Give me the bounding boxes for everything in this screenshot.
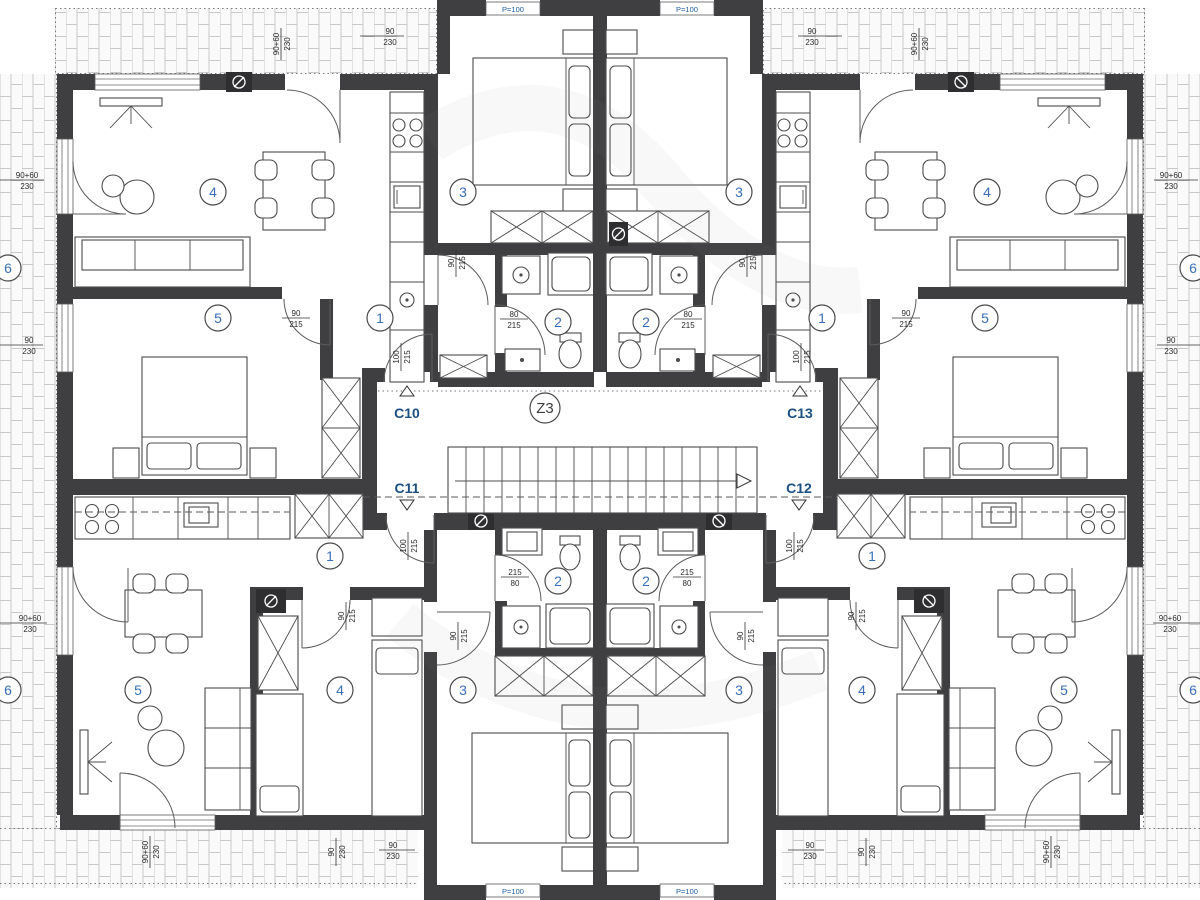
svg-text:4: 4 <box>858 682 866 698</box>
room-label: 2 <box>545 568 571 594</box>
svg-text:230: 230 <box>1053 845 1062 859</box>
window-parapet-label: P=100 <box>676 5 698 14</box>
wardrobe-icon <box>322 378 360 478</box>
room-label: 5 <box>972 305 998 331</box>
section-marker-c12: C12 <box>786 480 812 510</box>
room-label: 4 <box>327 677 353 703</box>
dim-door: 21580 <box>673 568 701 588</box>
svg-text:80: 80 <box>684 310 693 319</box>
svg-text:215: 215 <box>680 568 694 577</box>
svg-text:215: 215 <box>348 609 357 623</box>
svg-text:90: 90 <box>337 611 346 620</box>
svg-text:4: 4 <box>983 184 991 200</box>
room-label: 3 <box>726 179 752 205</box>
section-marker-c13: C13 <box>787 386 813 421</box>
svg-text:C10: C10 <box>394 405 420 421</box>
room-label: 6 <box>0 677 21 703</box>
svg-text:90: 90 <box>847 611 856 620</box>
svg-text:80: 80 <box>510 310 519 319</box>
svg-text:215: 215 <box>289 320 303 329</box>
svg-text:230: 230 <box>383 38 397 47</box>
room-label: 1 <box>367 305 393 331</box>
stair-label: Z3 <box>530 393 560 423</box>
svg-text:80: 80 <box>683 579 692 588</box>
svg-text:Z3: Z3 <box>536 400 554 417</box>
svg-text:215: 215 <box>747 629 756 643</box>
room-label: 5 <box>125 677 151 703</box>
room-label: 6 <box>0 255 21 281</box>
svg-text:C13: C13 <box>787 405 813 421</box>
svg-text:90+60: 90+60 <box>1042 840 1051 863</box>
svg-text:90: 90 <box>808 27 817 36</box>
svg-text:1: 1 <box>376 310 384 326</box>
svg-text:90: 90 <box>25 336 34 345</box>
stair-direction-arrow <box>737 474 751 488</box>
svg-text:C12: C12 <box>786 480 812 496</box>
kitchen-furniture <box>75 494 363 539</box>
svg-text:230: 230 <box>386 852 400 861</box>
svg-text:90: 90 <box>449 631 458 640</box>
svg-text:90: 90 <box>292 309 301 318</box>
svg-text:5: 5 <box>981 310 989 326</box>
svg-text:100: 100 <box>792 350 801 364</box>
svg-text:90: 90 <box>386 27 395 36</box>
svg-text:3: 3 <box>735 682 743 698</box>
svg-text:230: 230 <box>283 37 292 51</box>
svg-text:100: 100 <box>785 539 794 553</box>
svg-text:90: 90 <box>1167 336 1176 345</box>
svg-text:2: 2 <box>642 573 650 589</box>
closet-icon <box>440 355 487 378</box>
room-label: 1 <box>317 543 343 569</box>
svg-text:90+60: 90+60 <box>1159 614 1182 623</box>
room-label: 2 <box>633 309 659 335</box>
svg-text:90+60: 90+60 <box>16 171 39 180</box>
svg-text:215: 215 <box>410 539 419 553</box>
svg-text:230: 230 <box>152 845 161 859</box>
svg-text:215: 215 <box>803 350 812 364</box>
wardrobe-icon <box>258 616 298 690</box>
room-label: 2 <box>633 568 659 594</box>
room-label: 4 <box>849 677 875 703</box>
room-label: 2 <box>545 309 571 335</box>
svg-text:230: 230 <box>805 38 819 47</box>
svg-text:215: 215 <box>508 568 522 577</box>
svg-text:1: 1 <box>818 310 826 326</box>
svg-text:230: 230 <box>338 845 347 859</box>
svg-text:215: 215 <box>681 321 695 330</box>
svg-text:100: 100 <box>399 539 408 553</box>
svg-text:90+60: 90+60 <box>19 614 42 623</box>
room-label: 3 <box>450 677 476 703</box>
svg-text:90+60: 90+60 <box>141 840 150 863</box>
svg-text:4: 4 <box>209 184 217 200</box>
svg-text:3: 3 <box>459 682 467 698</box>
svg-text:90+60: 90+60 <box>910 32 919 55</box>
plan-left-half <box>0 0 607 900</box>
svg-text:1: 1 <box>868 548 876 564</box>
svg-text:230: 230 <box>1163 625 1177 634</box>
svg-text:3: 3 <box>735 184 743 200</box>
dim-door: 90215 <box>736 622 756 650</box>
svg-text:215: 215 <box>403 350 412 364</box>
floor-plan-canvas: Z3 C10 C11 C13 C12 4 3 3 4 5 1 2 2 1 5 1… <box>0 0 1200 900</box>
svg-text:90: 90 <box>902 309 911 318</box>
window-parapet-label: P=100 <box>502 5 524 14</box>
svg-text:6: 6 <box>1189 260 1197 276</box>
svg-text:215: 215 <box>899 320 913 329</box>
svg-text:4: 4 <box>336 682 344 698</box>
sink-icon <box>505 349 540 371</box>
room-label: 5 <box>205 305 231 331</box>
svg-text:6: 6 <box>4 682 12 698</box>
svg-text:5: 5 <box>134 682 142 698</box>
window-parapet-label: P=100 <box>502 887 524 896</box>
svg-text:215: 215 <box>507 321 521 330</box>
svg-text:230: 230 <box>1164 347 1178 356</box>
svg-text:215: 215 <box>458 256 467 270</box>
svg-text:3: 3 <box>459 184 467 200</box>
svg-text:215: 215 <box>858 609 867 623</box>
toilet-icon <box>559 333 581 368</box>
room-label: 1 <box>809 305 835 331</box>
svg-text:2: 2 <box>642 314 650 330</box>
svg-text:90: 90 <box>447 258 456 267</box>
svg-text:2: 2 <box>554 573 562 589</box>
svg-text:90: 90 <box>389 841 398 850</box>
wardrobe-icon <box>491 211 593 243</box>
svg-text:6: 6 <box>1189 682 1197 698</box>
svg-text:5: 5 <box>214 310 222 326</box>
room-label: 4 <box>974 179 1000 205</box>
svg-text:90: 90 <box>327 847 336 856</box>
dim-door: 90215 <box>892 309 920 329</box>
room-label: 1 <box>859 543 885 569</box>
svg-text:90: 90 <box>857 847 866 856</box>
svg-text:230: 230 <box>22 347 36 356</box>
kitchen-furniture <box>390 92 424 382</box>
dim-door: 21580 <box>501 568 529 588</box>
svg-text:90+60: 90+60 <box>1160 171 1183 180</box>
svg-text:2: 2 <box>554 314 562 330</box>
section-marker-c10: C10 <box>394 386 420 421</box>
svg-text:230: 230 <box>23 625 37 634</box>
svg-text:1: 1 <box>326 548 334 564</box>
svg-text:80: 80 <box>511 579 520 588</box>
staircase <box>448 447 757 513</box>
svg-text:230: 230 <box>803 852 817 861</box>
living-room-furniture <box>80 574 251 810</box>
ventilation-shaft-icon <box>609 222 628 246</box>
room-label: 4 <box>200 179 226 205</box>
svg-text:C11: C11 <box>395 480 420 496</box>
dim-door: 80215 <box>500 310 528 330</box>
toilet-icon <box>560 536 580 570</box>
svg-text:215: 215 <box>460 629 469 643</box>
svg-text:90: 90 <box>736 631 745 640</box>
room-label: 5 <box>1051 677 1077 703</box>
window-parapet-label: P=100 <box>676 887 698 896</box>
svg-text:230: 230 <box>921 37 930 51</box>
plan-right-half <box>593 0 1200 900</box>
room-label: 6 <box>1180 255 1200 281</box>
svg-text:230: 230 <box>868 845 877 859</box>
svg-text:215: 215 <box>796 539 805 553</box>
dim-door: 100215 <box>785 532 805 560</box>
room-label: 3 <box>450 179 476 205</box>
svg-text:230: 230 <box>20 182 34 191</box>
svg-text:90: 90 <box>738 258 747 267</box>
floor-plan-page: Z3 C10 C11 C13 C12 4 3 3 4 5 1 2 2 1 5 1… <box>0 0 1200 900</box>
svg-text:90+60: 90+60 <box>272 32 281 55</box>
svg-text:90: 90 <box>806 841 815 850</box>
svg-text:6: 6 <box>4 260 12 276</box>
section-marker-c11: C11 <box>395 480 420 510</box>
wardrobe-icon <box>295 494 363 538</box>
room-label: 3 <box>726 677 752 703</box>
shelf-icon <box>205 688 251 810</box>
svg-text:100: 100 <box>392 350 401 364</box>
room-label: 6 <box>1180 677 1200 703</box>
svg-text:230: 230 <box>1164 182 1178 191</box>
svg-text:5: 5 <box>1060 682 1068 698</box>
svg-text:215: 215 <box>749 256 758 270</box>
